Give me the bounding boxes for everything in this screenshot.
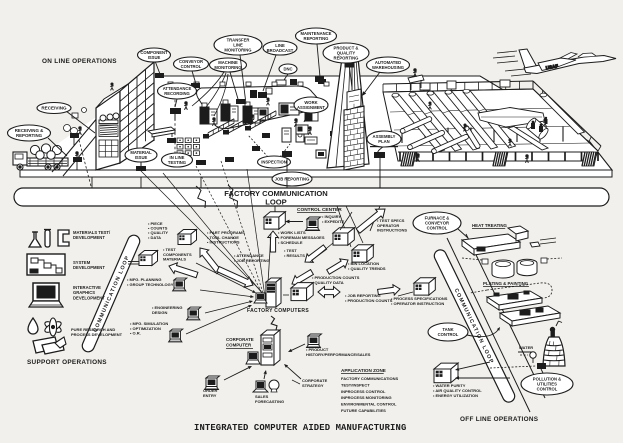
svg-text:ISSUE: ISSUE: [135, 155, 148, 160]
svg-text:INPROCESS MONITORING: INPROCESS MONITORING: [341, 395, 392, 400]
svg-text:MONITORING: MONITORING: [214, 65, 241, 70]
svg-text:INPROCESS CONTROL: INPROCESS CONTROL: [341, 389, 386, 394]
svg-text:FACTORY COMMUNICATIONS: FACTORY COMMUNICATIONS: [341, 376, 399, 381]
svg-text:WAREHOUSING: WAREHOUSING: [372, 65, 404, 70]
svg-text:CONTROL: CONTROL: [181, 64, 202, 69]
svg-text:COMPUTER: COMPUTER: [226, 342, 252, 347]
svg-text:ON LINE OPERATIONS: ON LINE OPERATIONS: [42, 58, 117, 65]
svg-text:LOOP: LOOP: [265, 198, 287, 207]
svg-text:• PRODUCTION COUNTS: • PRODUCTION COUNTS: [345, 298, 393, 303]
svg-text:DEVELOPMENT: DEVELOPMENT: [73, 265, 105, 270]
svg-text:• DATA: • DATA: [148, 235, 161, 240]
svg-text:• O.R.: • O.R.: [130, 331, 141, 336]
svg-text:INTEGRATED COMPUTER AIDED MANU: INTEGRATED COMPUTER AIDED MANUFACTURING: [194, 423, 406, 433]
svg-text:HISTORY/PERFORMANCE/SALES: HISTORY/PERFORMANCE/SALES: [306, 352, 371, 357]
svg-text:• INSTRUCTIONS: • INSTRUCTIONS: [207, 240, 240, 245]
svg-text:OFF LINE OPERATIONS: OFF LINE OPERATIONS: [460, 416, 539, 423]
svg-text:BROADCAST: BROADCAST: [267, 48, 294, 53]
svg-text:JOB REPORTING: JOB REPORTING: [275, 177, 310, 182]
svg-text:FUTURE CAPABILITIES: FUTURE CAPABILITIES: [341, 408, 386, 413]
svg-text:SUPPORT OPERATIONS: SUPPORT OPERATIONS: [27, 359, 107, 366]
svg-text:• RESULTS: • RESULTS: [284, 253, 305, 258]
svg-text:REPORTING: REPORTING: [304, 36, 329, 41]
svg-text:TEST/INSPECT: TEST/INSPECT: [341, 382, 370, 387]
svg-text:• ENERGY UTILIZATION: • ENERGY UTILIZATION: [433, 393, 478, 398]
svg-text:DNC: DNC: [283, 67, 292, 72]
svg-text:FORECASTING: FORECASTING: [255, 399, 284, 404]
svg-text:ENVIRONMENTAL CONTROL: ENVIRONMENTAL CONTROL: [341, 402, 397, 407]
svg-text:• JOB REPORTING: • JOB REPORTING: [234, 258, 270, 263]
svg-text:REPORTING: REPORTING: [334, 55, 359, 60]
svg-text:PROCESS DEVELOPMENT: PROCESS DEVELOPMENT: [71, 332, 123, 337]
svg-text:• EXPEDITE: • EXPEDITE: [322, 219, 345, 224]
svg-text:INSTRUCTIONS: INSTRUCTIONS: [377, 228, 407, 233]
svg-text:PLATING & PAINTING: PLATING & PAINTING: [483, 281, 529, 286]
svg-text:PLAN: PLAN: [378, 139, 389, 144]
svg-text:MONITORING: MONITORING: [224, 47, 251, 52]
svg-text:• OPERATOR INSTRUCTION: • OPERATOR INSTRUCTION: [391, 301, 444, 306]
svg-text:• QUALITY TRENDS: • QUALITY TRENDS: [348, 266, 386, 271]
svg-text:• GROUP TECHNOLOGY: • GROUP TECHNOLOGY: [127, 282, 174, 287]
svg-text:RECORDING: RECORDING: [164, 91, 190, 96]
svg-text:CONTROL: CONTROL: [537, 386, 558, 391]
svg-text:REPORTING: REPORTING: [16, 133, 43, 138]
svg-text:• SCHEDULE: • SCHEDULE: [278, 240, 303, 245]
svg-text:• QUALITY DATA: • QUALITY DATA: [312, 280, 344, 285]
svg-text:ENTRY: ENTRY: [203, 393, 217, 398]
svg-text:WATER: WATER: [519, 345, 533, 350]
svg-text:CORPORATE: CORPORATE: [226, 337, 254, 342]
svg-text:APPLICATION ZONE: APPLICATION ZONE: [341, 368, 386, 373]
svg-text:INSPECTION: INSPECTION: [261, 160, 287, 165]
svg-text:CONTROL: CONTROL: [438, 332, 459, 337]
svg-text:RECEIVING: RECEIVING: [41, 106, 67, 111]
svg-text:TESTING: TESTING: [168, 160, 186, 165]
svg-text:DEVELOPMENT: DEVELOPMENT: [73, 295, 105, 300]
svg-text:ASSIGNMENT: ASSIGNMENT: [297, 105, 325, 110]
svg-text:STRATEGY: STRATEGY: [302, 383, 324, 388]
svg-text:HEAT TREATING: HEAT TREATING: [472, 223, 508, 228]
svg-text:DESIGN: DESIGN: [152, 310, 167, 315]
svg-text:CONTROL: CONTROL: [427, 225, 448, 230]
svg-text:MATERIALS: MATERIALS: [163, 257, 186, 262]
svg-text:FACTORY COMPUTERS: FACTORY COMPUTERS: [247, 308, 309, 314]
svg-text:ISSUE: ISSUE: [148, 55, 161, 60]
svg-text:DEVELOPMENT: DEVELOPMENT: [73, 235, 105, 240]
